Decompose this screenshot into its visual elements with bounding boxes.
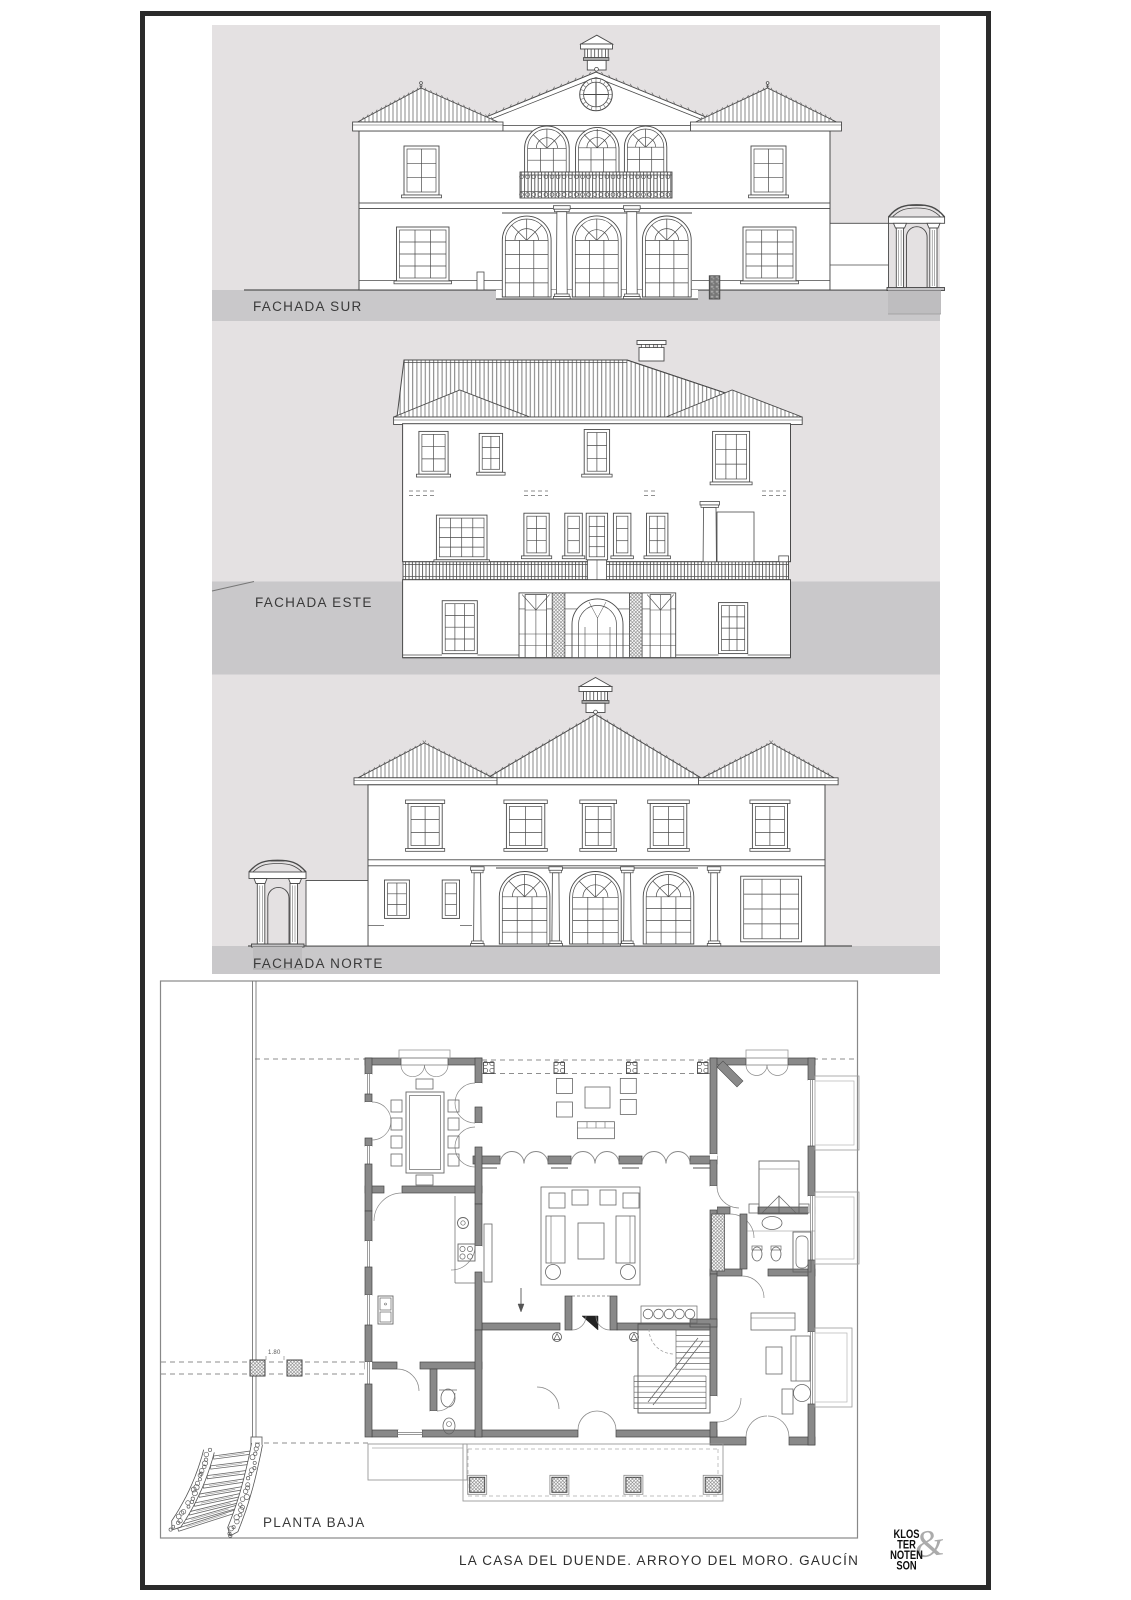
svg-text:PLANTA BAJA: PLANTA BAJA xyxy=(263,1515,366,1530)
svg-text:FACHADA NORTE: FACHADA NORTE xyxy=(253,956,384,971)
svg-text:SON: SON xyxy=(896,1560,916,1573)
svg-text:1.80: 1.80 xyxy=(268,1350,281,1356)
svg-text:FACHADA SUR: FACHADA SUR xyxy=(253,299,363,314)
svg-text:LA CASA DEL DUENDE. ARROYO DEL: LA CASA DEL DUENDE. ARROYO DEL MORO. GAU… xyxy=(459,1553,859,1568)
svg-text:FACHADA ESTE: FACHADA ESTE xyxy=(255,595,373,610)
